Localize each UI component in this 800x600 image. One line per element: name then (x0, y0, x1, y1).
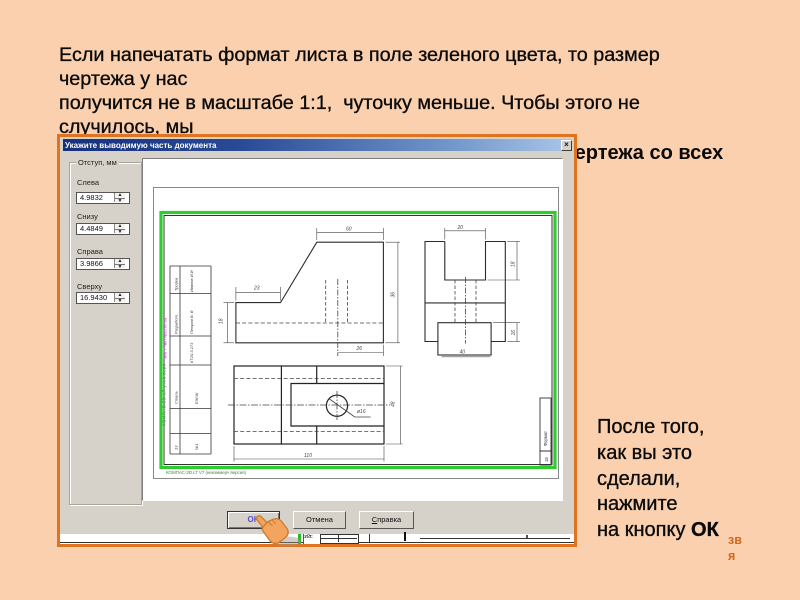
svg-text:Разработ.: Разработ. (174, 314, 179, 334)
svg-text:18: 18 (544, 457, 549, 462)
svg-text:Петров В. В: Петров В. В (189, 310, 194, 334)
svg-text:Формат: Формат (543, 431, 548, 446)
svg-text:36: 36 (391, 292, 397, 298)
svg-text:26: 26 (356, 346, 363, 352)
svg-text:КОМПАС-3D LT V7 (некоммерч вер: КОМПАС-3D LT V7 (некоммерч версия) (166, 470, 246, 475)
svg-text:Иванов И.И: Иванов И.И (189, 270, 194, 292)
svg-text:КТ10.3.173: КТ10.3.173 (189, 342, 194, 363)
svg-text:60: 60 (346, 227, 352, 233)
svg-text:16: 16 (511, 330, 517, 336)
svg-text:40: 40 (460, 350, 466, 356)
svg-text:№1: №1 (194, 443, 199, 450)
svg-text:18: 18 (511, 261, 517, 267)
svg-text:20: 20 (457, 225, 464, 231)
svg-text:110: 110 (304, 453, 312, 459)
svg-text:23: 23 (253, 286, 260, 292)
svg-text:ЕЖЧК: ЕЖЧК (194, 392, 199, 404)
svg-text:МАГТ Чел №10 кл 8а: МАГТ Чел №10 кл 8а (163, 317, 168, 359)
svg-text:48: 48 (391, 401, 397, 407)
svg-text:13: 13 (174, 445, 179, 450)
svg-text:ø16: ø16 (357, 409, 366, 415)
svg-text:Сталь: Сталь (174, 391, 179, 404)
svg-text:18: 18 (219, 318, 225, 324)
svg-text:Тройка: Тройка (174, 277, 179, 291)
svg-text:КОМПАС 3D LT учеб верс: КОМПАС 3D LT учеб верс (162, 364, 167, 426)
